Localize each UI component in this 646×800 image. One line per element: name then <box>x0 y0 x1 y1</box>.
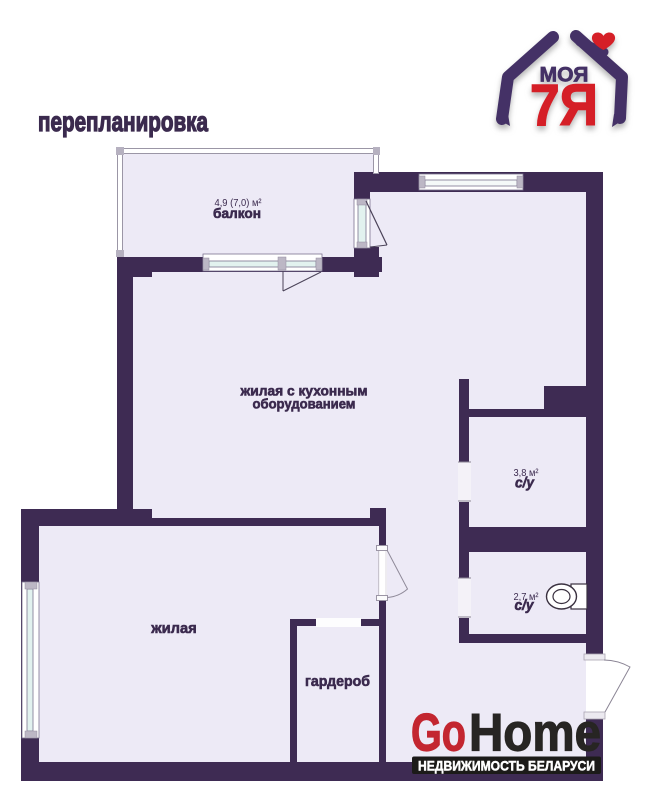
svg-text:Go: Go <box>411 704 466 763</box>
svg-text:7Я: 7Я <box>530 73 598 138</box>
svg-text:балкон: балкон <box>213 205 261 221</box>
svg-text:перепланировка: перепланировка <box>38 106 208 137</box>
svg-text:Home: Home <box>469 704 601 763</box>
svg-text:с/у: с/у <box>515 475 535 492</box>
svg-text:гардероб: гардероб <box>305 674 370 690</box>
svg-text:НЕДВИЖИМОСТЬ БЕЛАРУСИ: НЕДВИЖИМОСТЬ БЕЛАРУСИ <box>418 759 595 774</box>
svg-text:с/у: с/у <box>515 597 535 614</box>
svg-text:оборудованием: оборудованием <box>253 396 356 412</box>
svg-text:жилая: жилая <box>150 621 197 637</box>
